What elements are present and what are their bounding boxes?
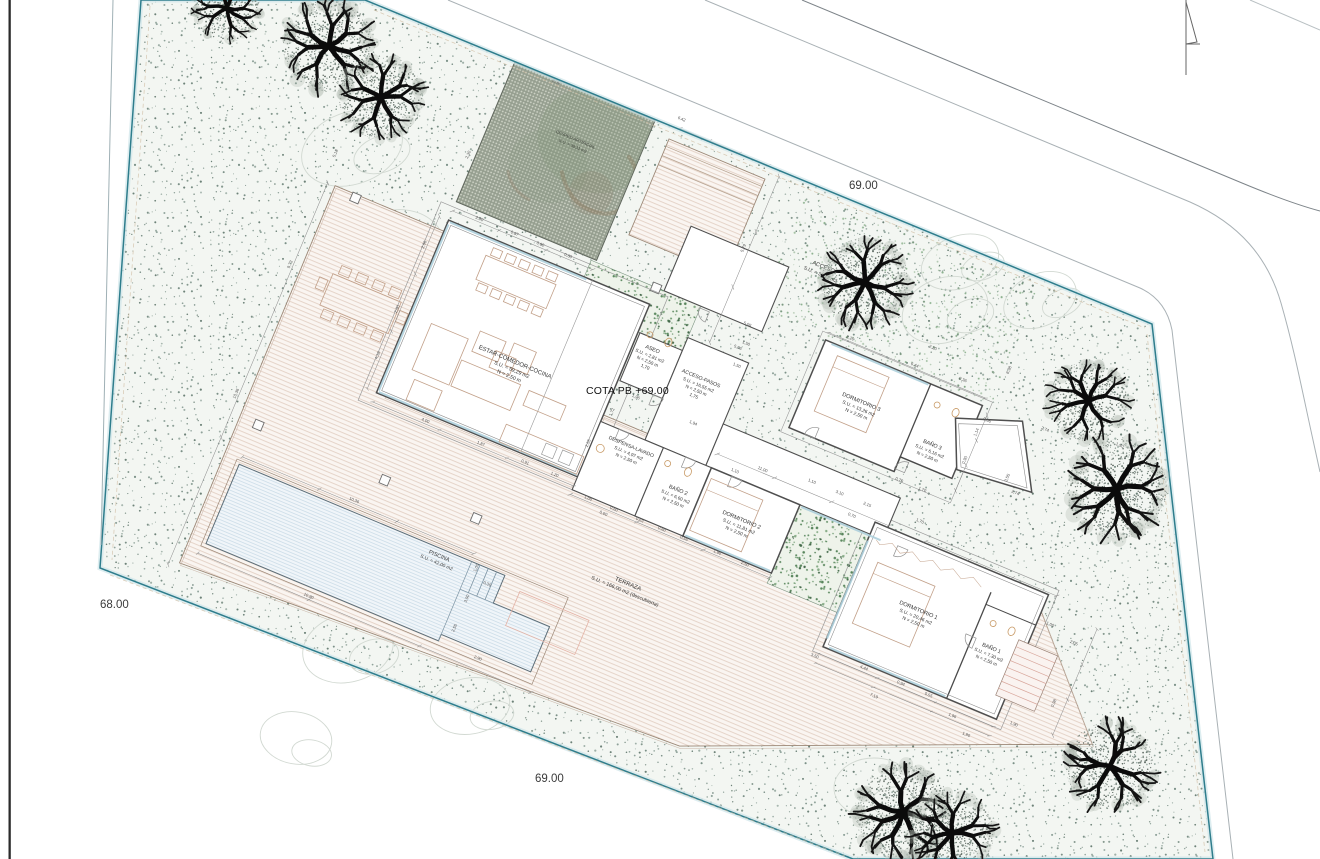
svg-text:69.00: 69.00 [535, 773, 564, 785]
svg-text:68.00: 68.00 [100, 599, 129, 611]
svg-text:COTA PB +69.00: COTA PB +69.00 [586, 385, 669, 397]
svg-text:69.00: 69.00 [849, 180, 878, 192]
